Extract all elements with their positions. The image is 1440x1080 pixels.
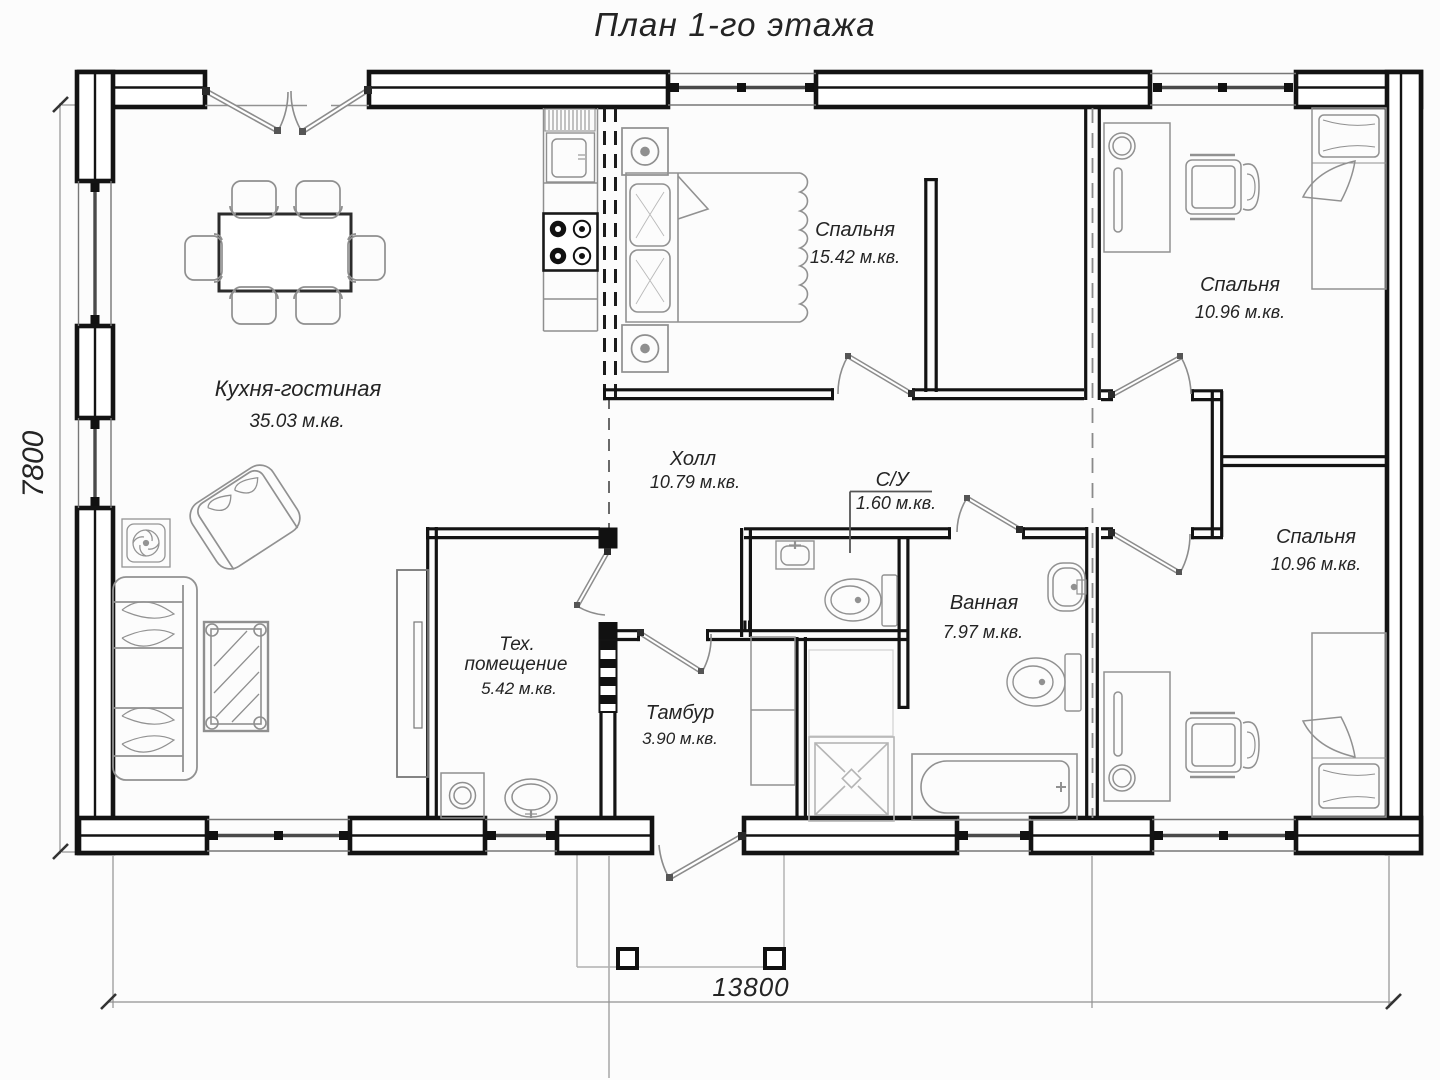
svg-text:1.60 м.кв.: 1.60 м.кв. [856,493,936,513]
svg-text:Тамбур: Тамбур [646,702,715,724]
svg-text:План 1-го этажа: План 1-го этажа [594,6,876,43]
svg-text:Спальня: Спальня [1276,526,1356,548]
svg-text:13800: 13800 [712,972,789,1002]
svg-text:10.96 м.кв.: 10.96 м.кв. [1271,554,1361,574]
svg-text:15.42 м.кв.: 15.42 м.кв. [810,247,900,267]
svg-text:3.90 м.кв.: 3.90 м.кв. [642,729,718,748]
svg-text:помещение: помещение [465,654,568,675]
svg-text:Ванная: Ванная [950,592,1019,614]
svg-text:35.03 м.кв.: 35.03 м.кв. [249,411,344,432]
svg-text:Спальня: Спальня [815,219,895,241]
svg-text:10.79 м.кв.: 10.79 м.кв. [650,472,740,492]
svg-text:Спальня: Спальня [1200,274,1280,296]
svg-text:7800: 7800 [17,430,50,497]
svg-text:5.42 м.кв.: 5.42 м.кв. [481,679,557,698]
svg-text:Тех.: Тех. [499,634,535,655]
svg-text:Холл: Холл [669,448,716,470]
svg-text:С/У: С/У [876,469,911,491]
svg-text:7.97 м.кв.: 7.97 м.кв. [943,622,1023,642]
svg-text:10.96 м.кв.: 10.96 м.кв. [1195,302,1285,322]
svg-text:Кухня-гостиная: Кухня-гостиная [215,376,382,401]
